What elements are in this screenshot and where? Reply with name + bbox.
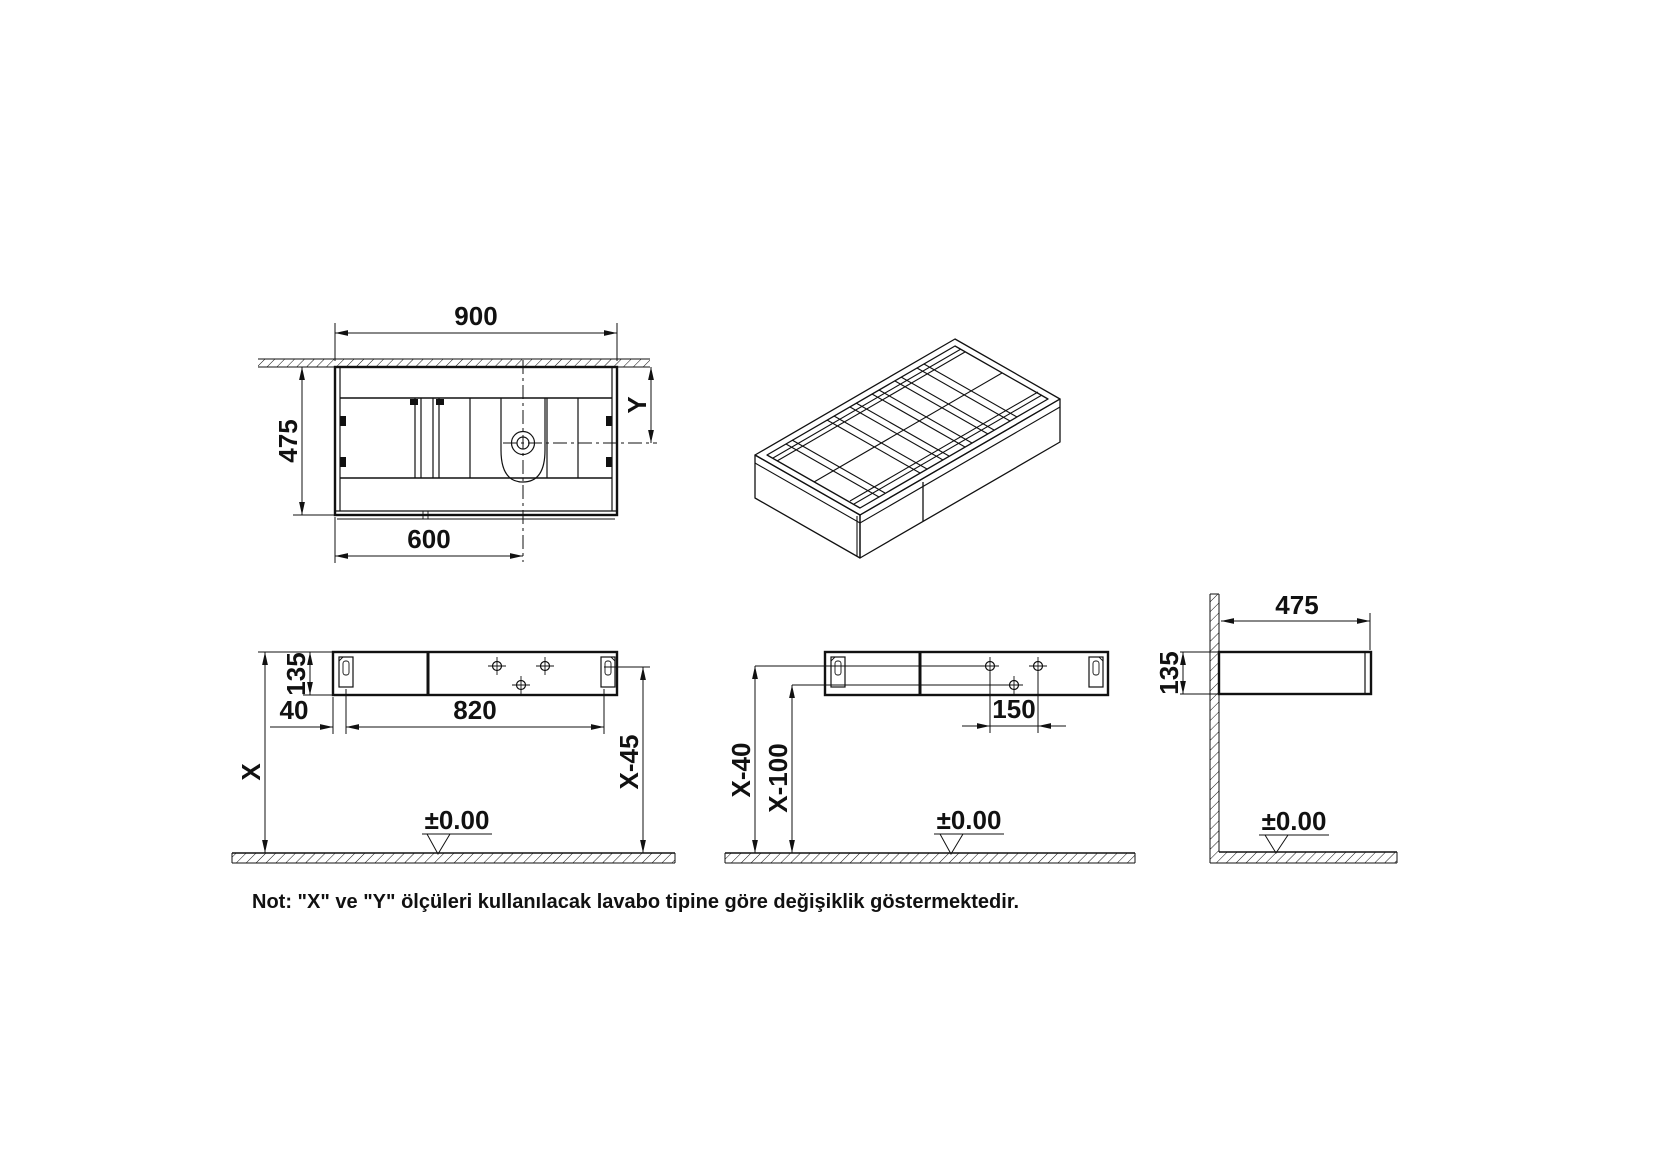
front-elevation-left: 135 X 40 820 X-45 ±0.00 xyxy=(232,652,675,863)
clip-right-upper xyxy=(606,416,612,426)
dim-label-820: 820 xyxy=(453,695,496,725)
datum-right: ±0.00 xyxy=(1259,806,1329,853)
floor-right xyxy=(1210,852,1397,863)
plan-wall-hatch xyxy=(258,359,650,367)
dim-label-135-left: 135 xyxy=(281,652,311,695)
dim-label-600: 600 xyxy=(407,524,450,554)
dim-label-475-side: 475 xyxy=(1275,590,1318,620)
plan-view: 900 475 Y 600 xyxy=(258,301,657,563)
dim-label-135-side: 135 xyxy=(1154,651,1184,694)
wall-side xyxy=(1210,594,1219,863)
datum-label-left: ±0.00 xyxy=(425,805,490,835)
datum-triangle-middle xyxy=(940,834,963,854)
clip-left-upper xyxy=(340,416,346,426)
cabinet-rear-panel-2 xyxy=(825,652,1108,695)
front-elevation-right: X-40 X-100 150 ±0.00 xyxy=(725,652,1135,863)
dim-label-150: 150 xyxy=(992,694,1035,724)
dim-475-side: 475 xyxy=(1221,590,1370,650)
floor-left xyxy=(232,853,675,863)
vanity-installation-drawing: 900 475 Y 600 xyxy=(0,0,1653,1167)
floor-middle xyxy=(725,853,1135,863)
datum-middle: ±0.00 xyxy=(934,805,1004,854)
plan-cabinet-body xyxy=(335,367,617,519)
side-elevation: 475 135 ±0.00 xyxy=(1154,590,1397,863)
dim-135-left: 135 xyxy=(281,652,333,696)
datum-label-middle: ±0.00 xyxy=(937,805,1002,835)
clip-right-lower xyxy=(606,457,612,467)
technical-drawing-page: 900 475 Y 600 xyxy=(0,0,1653,1167)
dim-label-x: X xyxy=(236,763,266,781)
datum-triangle-left xyxy=(427,834,450,854)
dim-label-x-40: X-40 xyxy=(726,743,756,798)
datum-label-right: ±0.00 xyxy=(1262,806,1327,836)
dim-600: 600 xyxy=(335,517,523,563)
dim-135-side: 135 xyxy=(1154,651,1219,694)
drawing-note: Not: "X" ve "Y" ölçüleri kullanılacak la… xyxy=(252,891,1019,913)
dim-900: 900 xyxy=(335,301,617,361)
isometric-view xyxy=(755,339,1060,558)
cabinet-side-profile xyxy=(1219,652,1371,694)
dim-label-x-45: X-45 xyxy=(614,735,644,790)
cabinet-rear-panel xyxy=(333,652,617,695)
dim-label-900: 900 xyxy=(454,301,497,331)
dim-y: Y xyxy=(622,367,652,443)
clip-left-lower xyxy=(340,457,346,467)
dim-label-475-plan: 475 xyxy=(273,419,303,462)
iso-top-rim-inner xyxy=(767,346,1048,508)
datum-triangle-right xyxy=(1265,835,1288,853)
dim-475-plan: 475 xyxy=(273,367,335,515)
dim-label-40: 40 xyxy=(280,695,309,725)
dim-label-y: Y xyxy=(622,396,652,413)
datum-left: ±0.00 xyxy=(422,805,492,854)
dim-label-x-100: X-100 xyxy=(763,743,793,812)
